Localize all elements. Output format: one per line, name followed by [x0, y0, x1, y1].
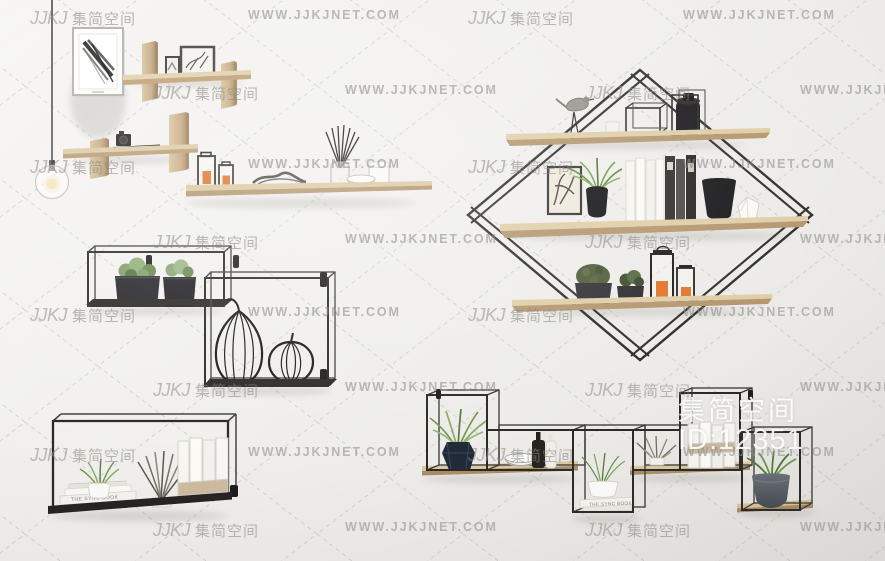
- vertical-board: [90, 138, 106, 179]
- scene-svg: THE SYNC BOOK: [0, 0, 885, 561]
- white-books: [626, 158, 664, 221]
- wall-bracket: [320, 272, 327, 287]
- candle-lantern: [198, 153, 215, 187]
- dark-bottle: [532, 440, 545, 468]
- small-candle-lantern: [677, 265, 694, 301]
- vertical-board: [142, 41, 155, 102]
- wall-bracket: [748, 390, 753, 400]
- tall-candle-lantern: [651, 247, 673, 302]
- candle-lantern: [219, 162, 233, 186]
- candle: [656, 281, 668, 299]
- photo-frame: [181, 47, 214, 75]
- vertical-board: [169, 112, 186, 173]
- wall-bracket: [233, 255, 239, 268]
- framed-artwork: [73, 28, 125, 97]
- black-planter-pot: [702, 178, 736, 220]
- wall-bracket: [436, 389, 441, 399]
- candle: [223, 176, 231, 185]
- vertical-board: [221, 61, 234, 109]
- black-shelf-board: [203, 379, 337, 386]
- white-box: [606, 122, 619, 133]
- dark-books: [665, 155, 696, 221]
- wall-scene: THE SYNC BOOK: [0, 0, 885, 561]
- white-binders: [178, 438, 228, 498]
- binder-band: [688, 442, 735, 454]
- candle: [203, 171, 212, 184]
- white-bottle: [546, 441, 556, 468]
- white-binders: [688, 422, 735, 468]
- leaning-art-frame: [548, 167, 581, 214]
